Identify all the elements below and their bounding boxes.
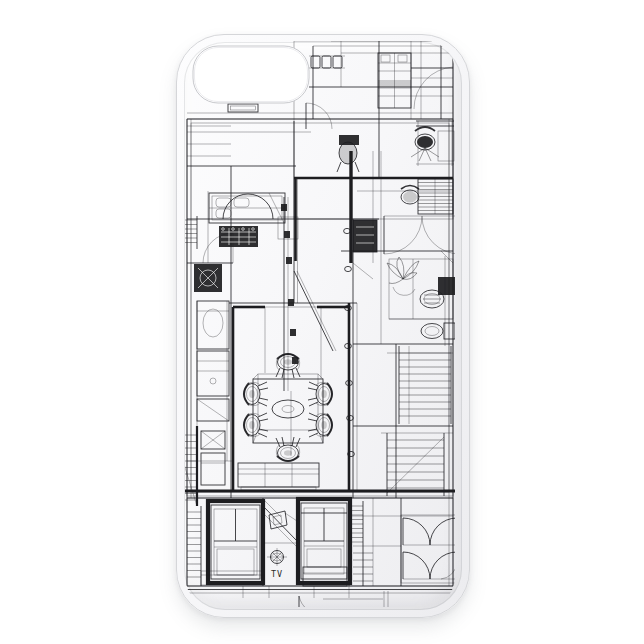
double-door-symbols (401, 515, 457, 583)
wardrobe-cabinet (309, 56, 345, 68)
phone-case: TV (176, 34, 470, 618)
desk-and-office-chair (411, 121, 454, 166)
dining-chair (308, 382, 332, 406)
dark-fixture (337, 135, 359, 172)
toilet (420, 277, 456, 308)
plan-walls (185, 151, 455, 506)
dining-set (244, 354, 332, 461)
bezel-door-arc (299, 591, 388, 615)
product-photo: TV (0, 0, 644, 644)
sideboard (238, 463, 319, 490)
window-unit-right (298, 499, 350, 586)
tv-symbol (267, 548, 287, 566)
dining-chair (244, 413, 268, 437)
stairs-right-upper (399, 346, 451, 424)
tv-label: TV (271, 569, 283, 579)
bidet (421, 323, 455, 339)
potted-plant (387, 257, 419, 295)
shelf-strip (349, 498, 373, 586)
hall-dark-appliance (353, 220, 377, 252)
tall-cabinet (378, 53, 411, 108)
stairs-bottom-left (177, 429, 201, 586)
services-spine (278, 197, 336, 456)
dining-chair (308, 413, 332, 437)
camera-cutout (193, 46, 309, 103)
window-unit-left (201, 501, 263, 585)
tv-nook: TV (263, 499, 297, 579)
bathroom (387, 256, 456, 346)
vent-detail (228, 104, 258, 112)
dining-chair (244, 382, 268, 406)
blueprint-print: TV (177, 35, 469, 617)
dining-chair (276, 437, 300, 461)
slatted-cabinet-office-chair (401, 179, 453, 214)
stove-dark (219, 226, 258, 247)
cad-frame-lines (187, 41, 456, 598)
